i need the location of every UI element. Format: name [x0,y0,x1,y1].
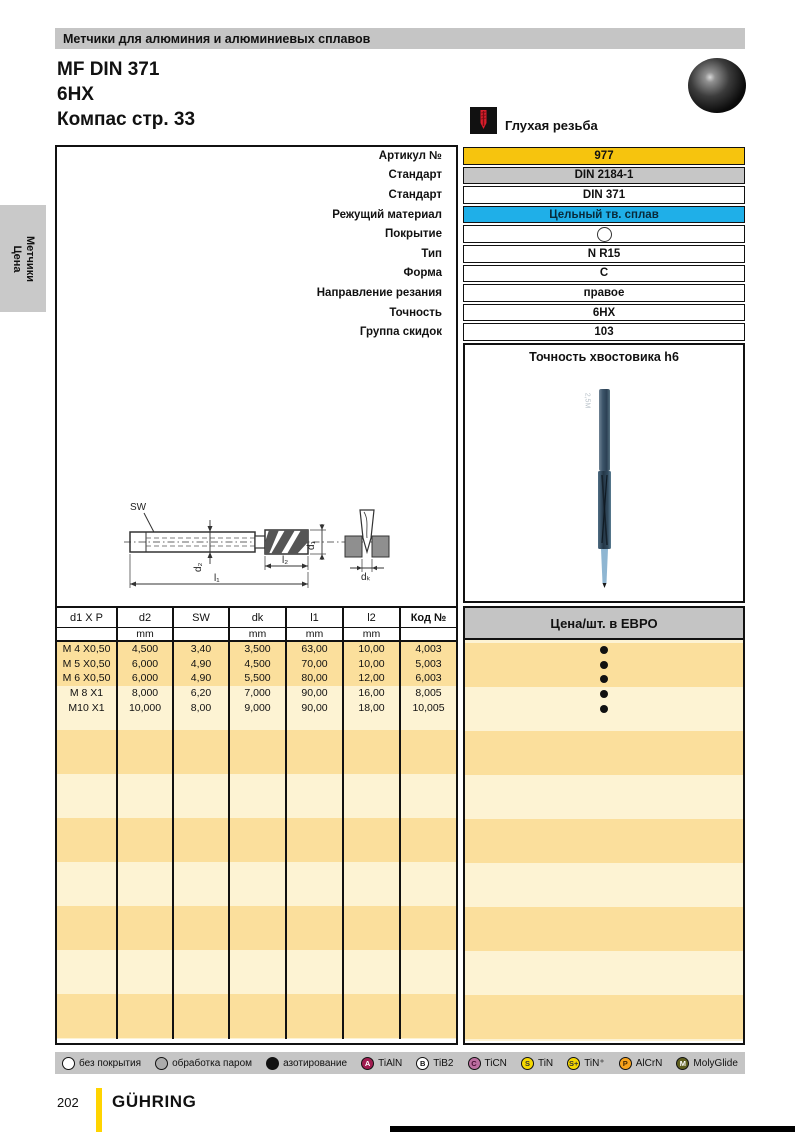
brand-logo: GÜHRING [112,1092,196,1112]
cell: 4,90 [174,671,228,686]
col-header-d2: d2 [118,608,174,627]
col-header-code: Код № [401,608,456,627]
cell: 8,000 [118,686,172,701]
spec-value-column: 977 DIN 2184-1 DIN 371 Цельный тв. сплав… [463,147,745,343]
title-line-tolerance: 6HX [57,82,195,107]
spec-value-cut-direction: правое [463,284,745,302]
price-dot-row [465,643,743,658]
price-dot-row [465,701,743,716]
col-d1xp: M 4 X0,50 M 5 X0,50 M 6 X0,50 M 8 X1 M10… [57,642,118,1039]
spec-value-coating [463,225,745,243]
spec-value-form: C [463,265,745,283]
cell: 5,003 [401,657,456,672]
price-dot-row [465,658,743,673]
spec-label: Покрытие [55,225,450,243]
cell: 6,000 [118,671,172,686]
cell: 4,500 [118,642,172,657]
cell: 4,90 [174,657,228,672]
legend-label: MolyGlide [693,1058,737,1069]
thread-type-label: Глухая резьба [505,118,598,133]
col-d2: 4,500 6,000 6,000 8,000 10,000 [118,642,174,1039]
cell: 10,00 [344,657,399,672]
legend-item: S+TiN⁺ [567,1057,604,1070]
page-number: 202 [57,1095,79,1110]
cell: M 4 X0,50 [57,642,116,657]
legend-item: PAlCrN [619,1057,663,1070]
col-sw: 3,40 4,90 4,90 6,20 8,00 [174,642,230,1039]
cell: 10,00 [344,642,399,657]
spec-label: Группа скидок [55,323,450,341]
coating-legend-bar: без покрытия обработка паром азотировани… [55,1052,745,1074]
page-title: MF DIN 371 6HX Компас стр. 33 [57,57,195,132]
shank-accuracy-box: Точность хвостовика h6 2,5M [463,343,745,603]
col-l2: 10,00 10,00 12,00 16,00 18,00 [344,642,401,1039]
price-dot [600,690,608,698]
title-line-compass: Компас стр. 33 [57,107,195,132]
cell: 3,500 [230,642,285,657]
cell: 16,00 [344,686,399,701]
table-body: M 4 X0,50 M 5 X0,50 M 6 X0,50 M 8 X1 M10… [57,642,456,1039]
spec-label: Точность [55,304,450,322]
legend-label: TiN [538,1058,553,1069]
blind-hole-thread-icon [470,107,497,134]
cell: 6,003 [401,671,456,686]
col-l1: 63,00 70,00 80,00 90,00 90,00 [287,642,344,1039]
legend-item: MMolyGlide [676,1057,737,1070]
shank-accuracy-note: Точность хвостовика h6 [465,350,743,364]
cell: 3,40 [174,642,228,657]
spec-label: Артикул № [55,147,450,165]
unit-cell: mm [344,628,401,640]
cell: 12,00 [344,671,399,686]
cell: 8,00 [174,700,228,715]
legend-item: CTiCN [468,1057,507,1070]
price-dot-row [465,687,743,702]
table-units-row: mm mm mm mm [57,628,456,642]
price-dot [600,661,608,669]
spec-value-article: 977 [463,147,745,165]
unit-cell [57,628,118,640]
unit-cell [174,628,230,640]
cell: 70,00 [287,657,342,672]
spec-label: Режущий материал [55,206,450,224]
col-dk: 3,500 4,500 5,500 7,000 9,000 [230,642,287,1039]
cell: 10,005 [401,700,456,715]
cell: 4,500 [230,657,285,672]
legend-item: BTiB2 [416,1057,453,1070]
legend-item: ATiAlN [361,1057,402,1070]
side-tab-line1: Метчики [23,236,36,282]
dim-label-d1: d₁ [306,540,317,550]
cell: 6,20 [174,686,228,701]
unit-cell [401,628,456,640]
price-header: Цена/шт. в ЕВРО [465,608,743,640]
alcrn-badge-icon: P [619,1057,632,1070]
uncoated-circle-icon [597,227,612,242]
spec-label: Направление резания [55,284,450,302]
spec-value-standard1: DIN 2184-1 [463,167,745,185]
category-header-text: Метчики для алюминия и алюминиевых сплав… [63,32,370,46]
dim-label-d2: d₂ [193,562,204,572]
cell: 90,00 [287,686,342,701]
spec-value-discount-group: 103 [463,323,745,341]
cell: M 5 X0,50 [57,657,116,672]
steam-treated-icon [155,1057,168,1070]
legend-item: STiN [521,1057,553,1070]
unit-cell: mm [230,628,287,640]
legend-label: TiN⁺ [584,1058,604,1069]
price-dot [600,646,608,654]
side-tab: Метчики Цена [0,205,46,312]
col-code: 4,003 5,003 6,003 8,005 10,005 [401,642,456,1039]
col-header-d1xp: d1 X P [57,608,118,627]
cell: 10,000 [118,700,172,715]
spec-value-material: Цельный тв. сплав [463,206,745,224]
cell: 9,000 [230,700,285,715]
legend-label: обработка паром [172,1058,252,1069]
price-panel: Цена/шт. в ЕВРО [463,606,745,1045]
molyglide-badge-icon: M [676,1057,689,1070]
spec-label: Форма [55,265,450,283]
tin-plus-badge-icon: S+ [567,1057,580,1070]
legend-item: обработка паром [155,1057,252,1070]
technical-drawing: SW d₂ d₁ l₂ [60,494,458,604]
spec-label-column: Артикул № Стандарт Стандарт Режущий мате… [55,147,450,343]
tib2-badge-icon: B [416,1057,429,1070]
unit-cell: mm [118,628,174,640]
cell: 80,00 [287,671,342,686]
dim-label-l2: l₂ [282,555,288,566]
cell: 4,003 [401,642,456,657]
dim-label-sw: SW [130,502,147,513]
spec-label: Тип [55,245,450,263]
price-body [465,640,743,1041]
catalog-page: Метчики для алюминия и алюминиевых сплав… [0,0,800,1132]
uncoated-icon [62,1057,75,1070]
brand-yellow-bar [96,1088,102,1132]
cell: M 8 X1 [57,686,116,701]
col-header-sw: SW [174,608,230,627]
cell: 63,00 [287,642,342,657]
cell: M10 X1 [57,700,116,715]
cell: 8,005 [401,686,456,701]
unit-cell: mm [287,628,344,640]
legend-label: AlCrN [636,1058,663,1069]
legend-label: TiB2 [433,1058,453,1069]
cell: 18,00 [344,700,399,715]
legend-label: без покрытия [79,1058,141,1069]
dim-label-l1: l₁ [214,573,220,584]
cell: M 6 X0,50 [57,671,116,686]
page-edge-index-mark [390,1126,795,1132]
col-header-dk: dk [230,608,287,627]
tin-badge-icon: S [521,1057,534,1070]
dimension-table: d1 X P d2 SW dk l1 l2 Код № mm mm mm mm … [55,606,458,1045]
cell: 90,00 [287,700,342,715]
cell: 7,000 [230,686,285,701]
product-group-ball-icon [688,58,746,113]
cell: 6,000 [118,657,172,672]
category-header-bar: Метчики для алюминия и алюминиевых сплав… [55,28,745,49]
legend-label: TiAlN [378,1058,402,1069]
col-header-l2: l2 [344,608,401,627]
legend-label: TiCN [485,1058,507,1069]
price-dot [600,675,608,683]
spec-value-standard2: DIN 371 [463,186,745,204]
spec-value-type: N R15 [463,245,745,263]
title-line-standard: MF DIN 371 [57,57,195,82]
spec-label: Стандарт [55,167,450,185]
spec-value-accuracy: 6HX [463,304,745,322]
tialn-badge-icon: A [361,1057,374,1070]
price-dot-row [465,672,743,687]
legend-label: азотирование [283,1058,347,1069]
legend-item: азотирование [266,1057,347,1070]
nitrided-icon [266,1057,279,1070]
tap-photo [574,385,634,595]
dim-label-dk: dₖ [361,572,371,583]
price-dot [600,705,608,713]
col-header-l1: l1 [287,608,344,627]
legend-item: без покрытия [62,1057,141,1070]
spec-label: Стандарт [55,186,450,204]
ticn-badge-icon: C [468,1057,481,1070]
cell: 5,500 [230,671,285,686]
side-tab-line2: Цена [10,236,23,282]
table-header-row: d1 X P d2 SW dk l1 l2 Код № [57,608,456,628]
